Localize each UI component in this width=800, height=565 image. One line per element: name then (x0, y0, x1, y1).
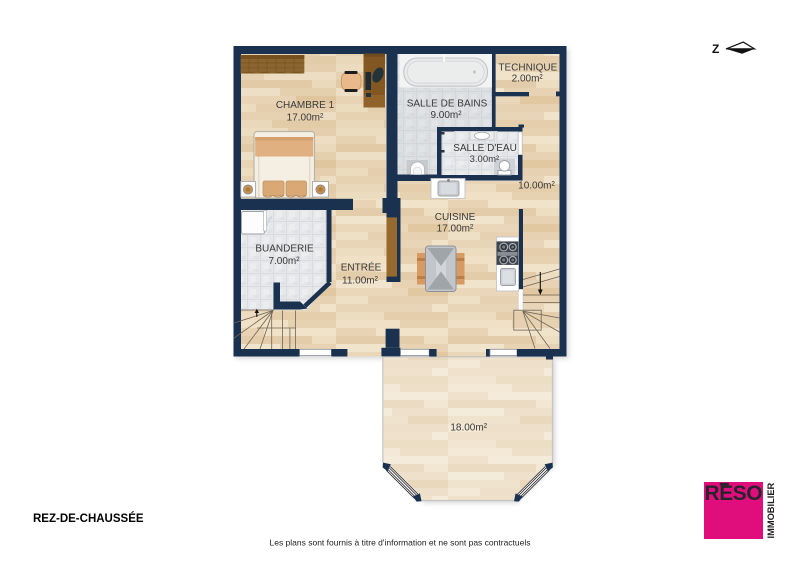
svg-text:Les plans sont fournis à titre: Les plans sont fournis à titre d'informa… (269, 538, 530, 548)
svg-text:2.00m²: 2.00m² (512, 74, 544, 85)
svg-text:18.00m²: 18.00m² (450, 423, 487, 434)
svg-text:SALLE DE BAINS: SALLE DE BAINS (407, 99, 488, 110)
svg-text:CHAMBRE 1: CHAMBRE 1 (276, 100, 335, 111)
svg-text:11.00m²: 11.00m² (342, 276, 379, 287)
svg-text:3.00m²: 3.00m² (470, 154, 500, 165)
svg-text:17.00m²: 17.00m² (437, 224, 474, 235)
svg-text:REZ-DE-CHAUSSÉE: REZ-DE-CHAUSSÉE (33, 512, 144, 525)
svg-text:Z: Z (712, 42, 719, 56)
svg-text:7.00m²: 7.00m² (268, 256, 300, 267)
svg-text:ENTRÉE: ENTRÉE (341, 261, 382, 274)
svg-text:SALLE D'EAU: SALLE D'EAU (453, 143, 517, 154)
svg-text:BUANDERIE: BUANDERIE (255, 244, 314, 255)
svg-text:17.00m²: 17.00m² (287, 113, 324, 124)
svg-text:CUISINE: CUISINE (435, 212, 476, 223)
svg-text:10.00m²: 10.00m² (518, 181, 555, 192)
svg-text:RESO: RESO (705, 482, 763, 505)
svg-text:IMMOBILIER: IMMOBILIER (766, 482, 776, 538)
svg-text:TECHNIQUE: TECHNIQUE (498, 63, 557, 74)
svg-text:9.00m²: 9.00m² (430, 110, 462, 121)
